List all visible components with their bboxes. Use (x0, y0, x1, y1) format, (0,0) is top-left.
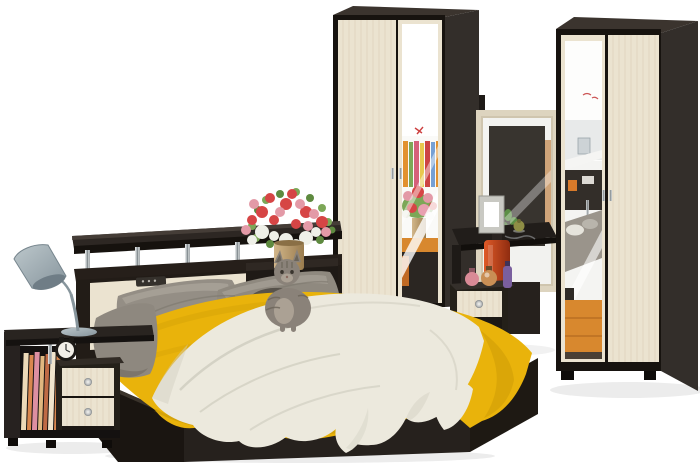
unit-foot (102, 440, 112, 448)
wardrobe-right (556, 17, 698, 391)
wardrobe-right-door-gap (605, 35, 608, 365)
wardrobe-right-foot-right (644, 371, 656, 380)
wardrobe-right-handle-right (609, 190, 612, 201)
vanity-drawer-knob (475, 300, 483, 308)
unit-bottom-rail (20, 430, 120, 438)
photo-frame (479, 196, 504, 233)
unit-drawer-cabinet (56, 357, 124, 438)
wardrobe-right-mirror-reflection (565, 41, 602, 359)
wardrobe-right-foot-left (561, 371, 574, 380)
unit-foot (8, 438, 18, 446)
wardrobe-right-door-grain (608, 35, 659, 365)
product-photo: Studio photo of a wenge-and-light-oak be… (0, 0, 700, 464)
wardrobe-right-shadow (550, 382, 700, 398)
wardrobe-center-door-gap (396, 20, 398, 303)
unit-left-panel (4, 332, 20, 438)
wardrobe-center-handle-right (399, 168, 402, 179)
unit-foot (46, 440, 56, 448)
wardrobe-center-door-grain (338, 20, 396, 303)
wardrobe-right-handle-left (602, 190, 605, 201)
wardrobe-right-plinth (556, 362, 661, 371)
unit-drawer-knob-top (84, 378, 92, 386)
wardrobe-center-mirror-reflection (402, 24, 439, 303)
bedroom-set-illustration (0, 0, 700, 464)
vanity-lower-box (506, 282, 540, 334)
wardrobe-center-side (445, 10, 479, 307)
unit-drawer-knob-bottom (84, 408, 92, 416)
wardrobe-right-side (661, 21, 698, 391)
wardrobe-center-handle-left (391, 168, 394, 179)
